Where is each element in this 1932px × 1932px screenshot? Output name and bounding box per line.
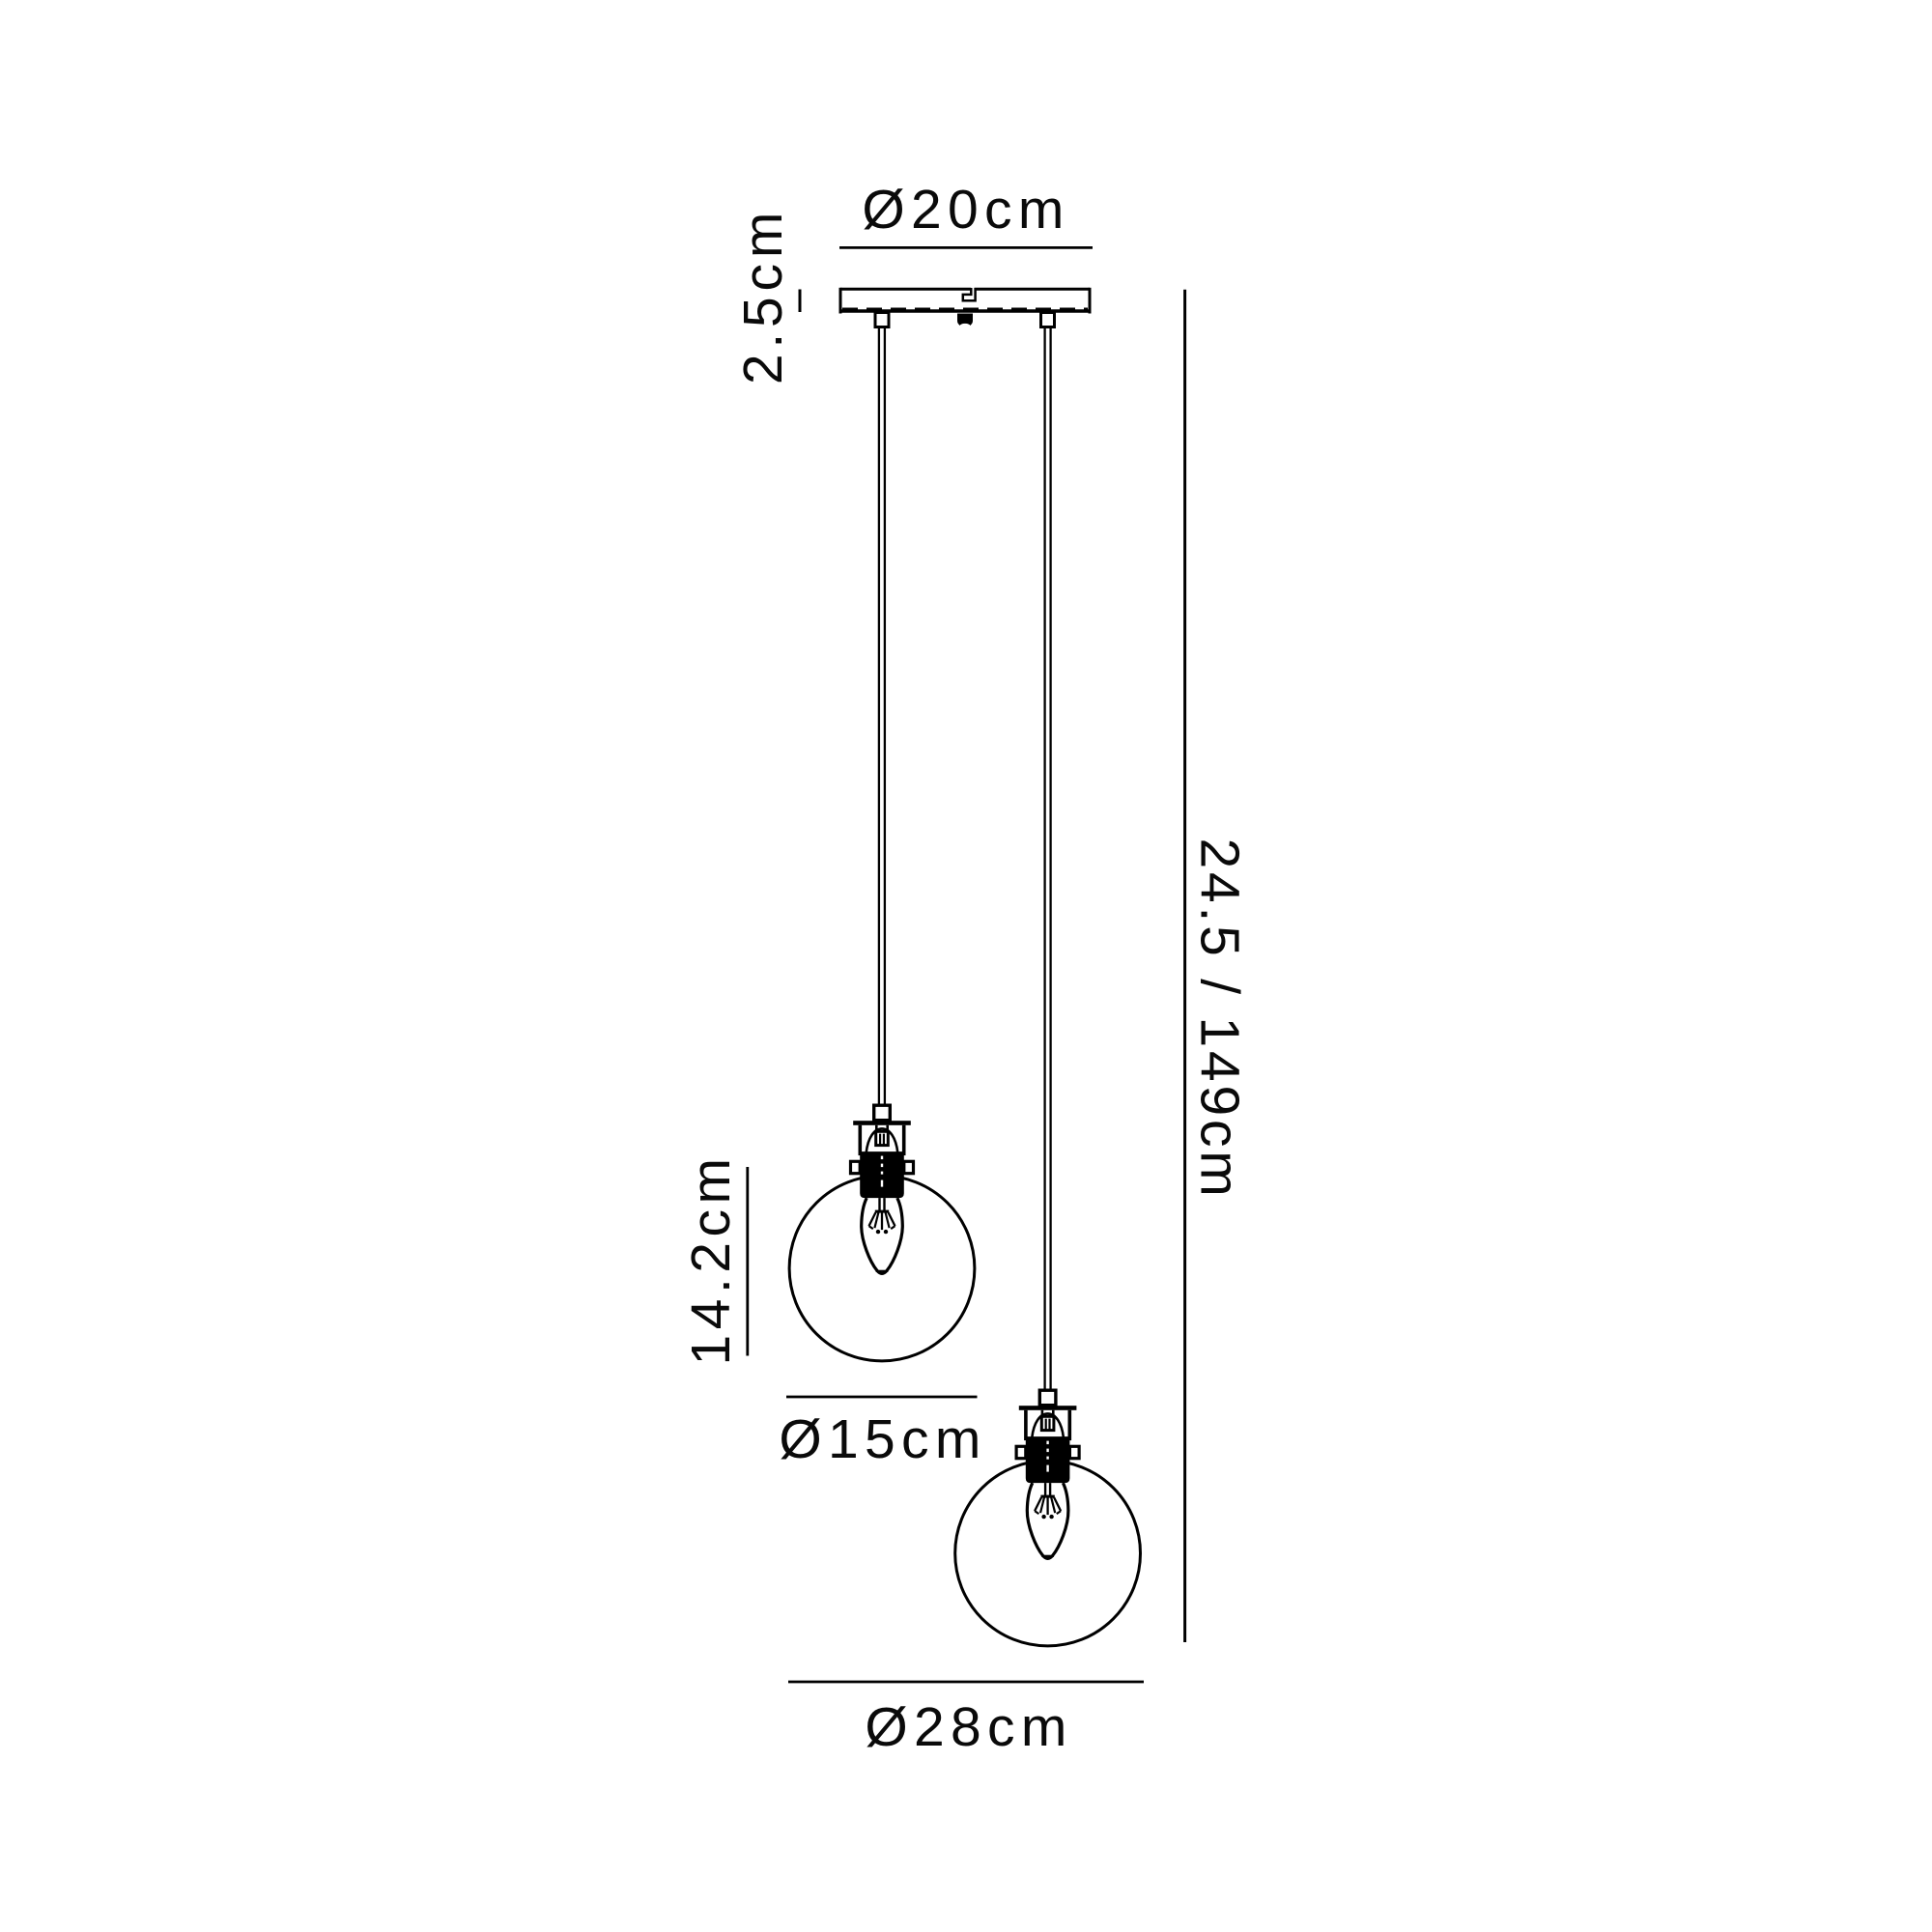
svg-text:24.5 / 149cm: 24.5 / 149cm	[1189, 838, 1251, 1200]
svg-text:2.5cm: 2.5cm	[732, 207, 794, 384]
svg-text:Ø20cm: Ø20cm	[862, 179, 1069, 241]
svg-text:Ø15cm: Ø15cm	[779, 1408, 986, 1470]
svg-text:14.2cm: 14.2cm	[680, 1153, 742, 1366]
svg-text:Ø28cm: Ø28cm	[865, 1696, 1072, 1758]
